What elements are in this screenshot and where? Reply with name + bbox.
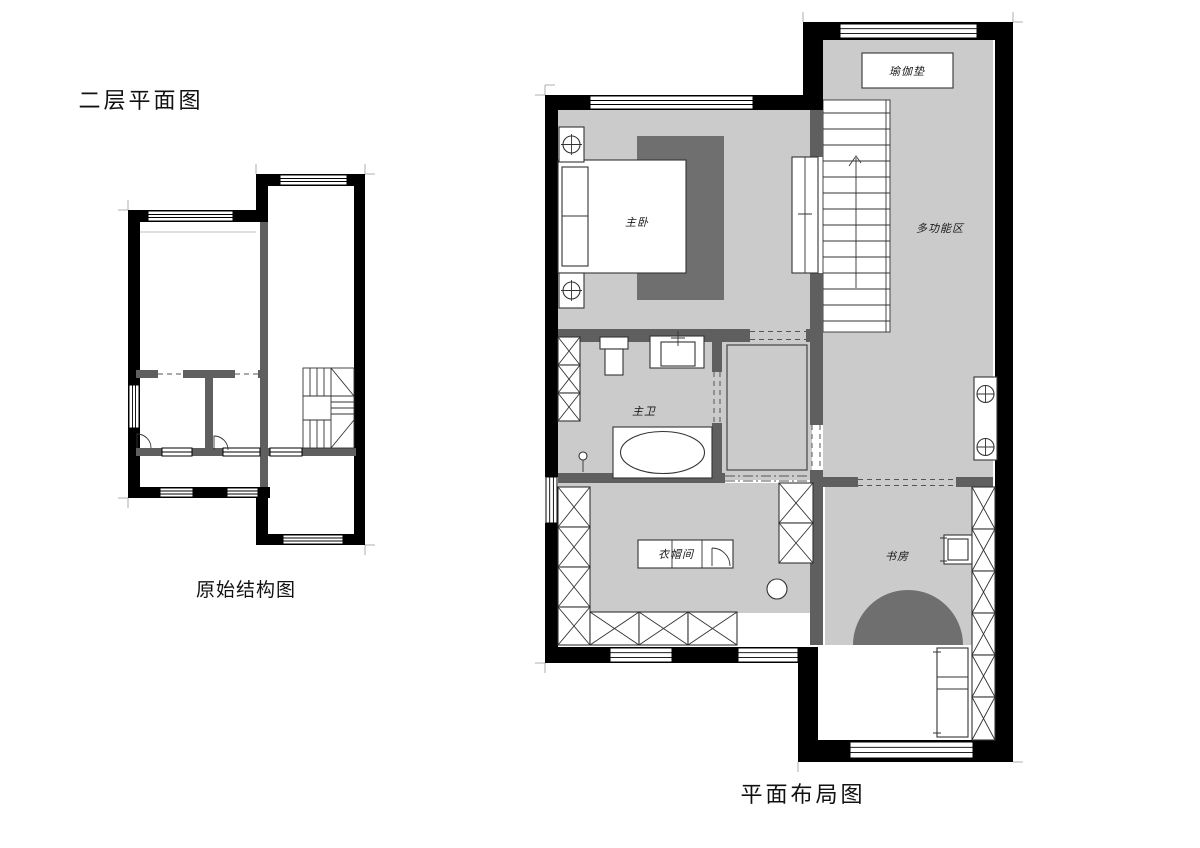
small-plan-staircase [303, 368, 354, 448]
room-label-cloakroom: 衣帽间 [658, 548, 695, 561]
small-plan-caption: 原始结构图 [196, 579, 296, 601]
room-label-yoga-mat: 瑜伽垫 [889, 65, 925, 78]
wardrobe-bottom-row [590, 612, 737, 645]
staircase [823, 100, 890, 332]
room-label-master-bathroom: 主卫 [632, 405, 656, 418]
room-label-study: 书房 [885, 550, 909, 563]
utility-room [727, 345, 807, 470]
toilet-icon [600, 337, 628, 349]
room-label-multi-function: 多功能区 [916, 222, 965, 235]
floorplan-drawing: 二层平面图 原始结构图 平面布局图 瑜伽垫 主卧 多功能区 主卫 衣帽间 书房 [0, 0, 1200, 848]
balcony-desk [933, 648, 968, 737]
large-plan [535, 12, 1023, 772]
small-plan [118, 164, 375, 555]
multifunction-cabinet [974, 377, 997, 460]
bedroom-sliding-door [792, 157, 818, 273]
room-label-master-bedroom: 主卧 [625, 216, 649, 229]
wardrobe-left-column [558, 487, 590, 645]
stool-icon [767, 579, 787, 599]
wardrobe-right-column [779, 483, 813, 563]
floorplan-sheet: 二层平面图 原始结构图 平面布局图 瑜伽垫 主卧 多功能区 主卫 衣帽间 书房 [0, 0, 1200, 848]
large-plan-caption: 平面布局图 [740, 782, 865, 807]
floor-drain-icon [579, 452, 587, 460]
bath-cabinet [558, 337, 580, 421]
page-title: 二层平面图 [78, 88, 203, 113]
bookshelf-column [972, 487, 995, 740]
bed-pillows [562, 167, 588, 266]
small-plan-windows [129, 175, 347, 544]
